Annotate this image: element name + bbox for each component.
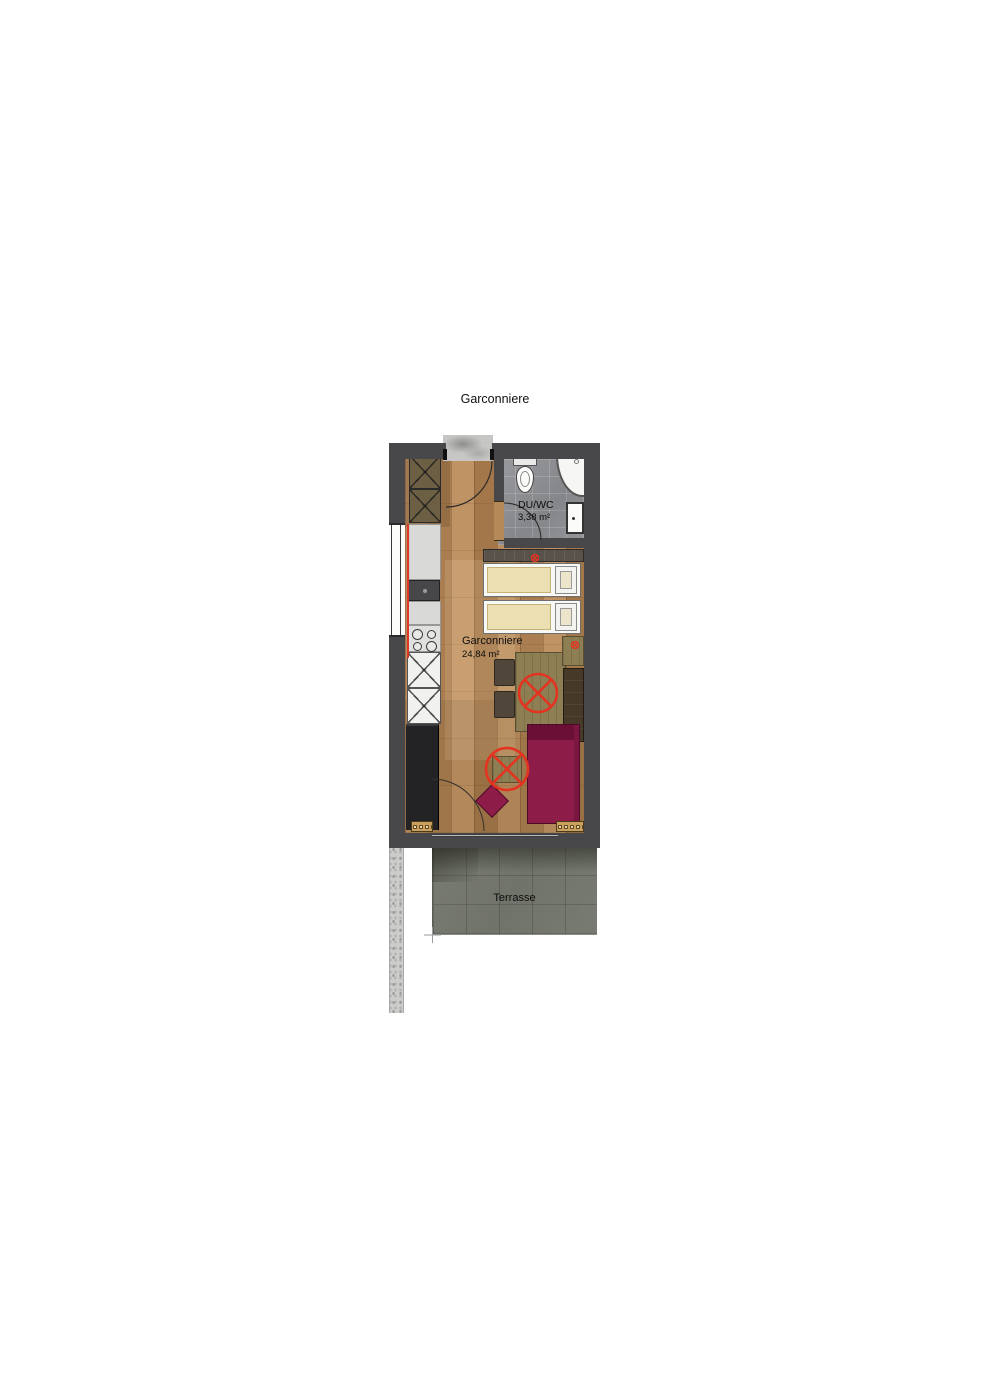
radiator-left <box>411 821 433 832</box>
sofa <box>527 724 580 824</box>
sofa-armrest <box>574 725 579 823</box>
bed-2 <box>483 600 581 634</box>
window-left <box>389 523 405 637</box>
kitchen-sink-unit <box>408 580 440 601</box>
bathroom-label: DU/WC <box>518 499 554 511</box>
kitchen-cabinet-x-1 <box>407 652 441 688</box>
exterior-wall-strip <box>389 845 404 1013</box>
kitchen-counter-upper <box>407 524 441 580</box>
toilet <box>513 457 537 495</box>
wall-right <box>584 443 600 848</box>
kitchen-sink-drain <box>423 589 427 593</box>
entry-doorway-texture <box>443 435 493 461</box>
radiator-right <box>556 821 584 832</box>
coffee-table <box>492 756 522 783</box>
bed-headboard-shelf <box>483 549 584 562</box>
sofa-backrest <box>528 725 579 740</box>
room-area-label: 24,84 m² <box>462 649 500 660</box>
kitchen-stove <box>407 625 441 652</box>
terrace-label: Terrasse <box>432 892 597 904</box>
sink-tap-dot <box>572 517 575 520</box>
toilet-bowl-inner <box>520 471 530 487</box>
entry-wardrobe <box>409 455 441 489</box>
stove-burner-2 <box>427 630 436 639</box>
room-label: Garconniere <box>462 635 523 647</box>
dining-chair-1 <box>494 659 515 686</box>
kitchen-red-installation-line <box>407 524 409 658</box>
stove-burner-4 <box>426 641 437 652</box>
stove-burner-3 <box>413 642 422 651</box>
window-glass-line-inner <box>400 525 401 635</box>
kitchen-counter-lower <box>407 601 441 625</box>
entry-door-jamb-left <box>443 449 447 460</box>
wall-left <box>389 443 405 848</box>
bed-1 <box>483 563 581 597</box>
page: Garconniere Terrasse DU/WC 3, <box>0 0 990 1400</box>
shower-drain <box>574 459 579 464</box>
toilet-bowl <box>516 466 534 493</box>
bedside-bench <box>562 636 584 666</box>
page-title: Garconniere <box>0 392 990 406</box>
window-glass-line-outer <box>391 525 392 635</box>
kitchen-cabinet-x-2 <box>407 688 441 724</box>
bathroom-door-threshold <box>494 501 504 541</box>
bathroom-sink <box>566 502 584 534</box>
terrace-door-glass <box>432 834 558 837</box>
entry-door-jamb-right <box>490 449 494 460</box>
bathroom-wall-south <box>504 538 584 548</box>
bed-1-pillow <box>555 566 577 594</box>
bathroom-area-label: 3,38 m² <box>518 512 550 523</box>
bed-1-pillow-inner <box>560 571 572 589</box>
dining-table <box>515 652 566 732</box>
dining-chair-2 <box>494 691 515 718</box>
bed-1-mattress <box>487 567 551 593</box>
bed-2-pillow-inner <box>560 608 572 626</box>
entry-wardrobe-lower <box>409 489 441 523</box>
stove-burner-1 <box>412 629 423 640</box>
bed-2-mattress <box>487 604 551 630</box>
bathroom-wall-west <box>494 453 504 501</box>
sideboard-dark <box>406 724 439 830</box>
bed-2-pillow <box>555 603 577 631</box>
